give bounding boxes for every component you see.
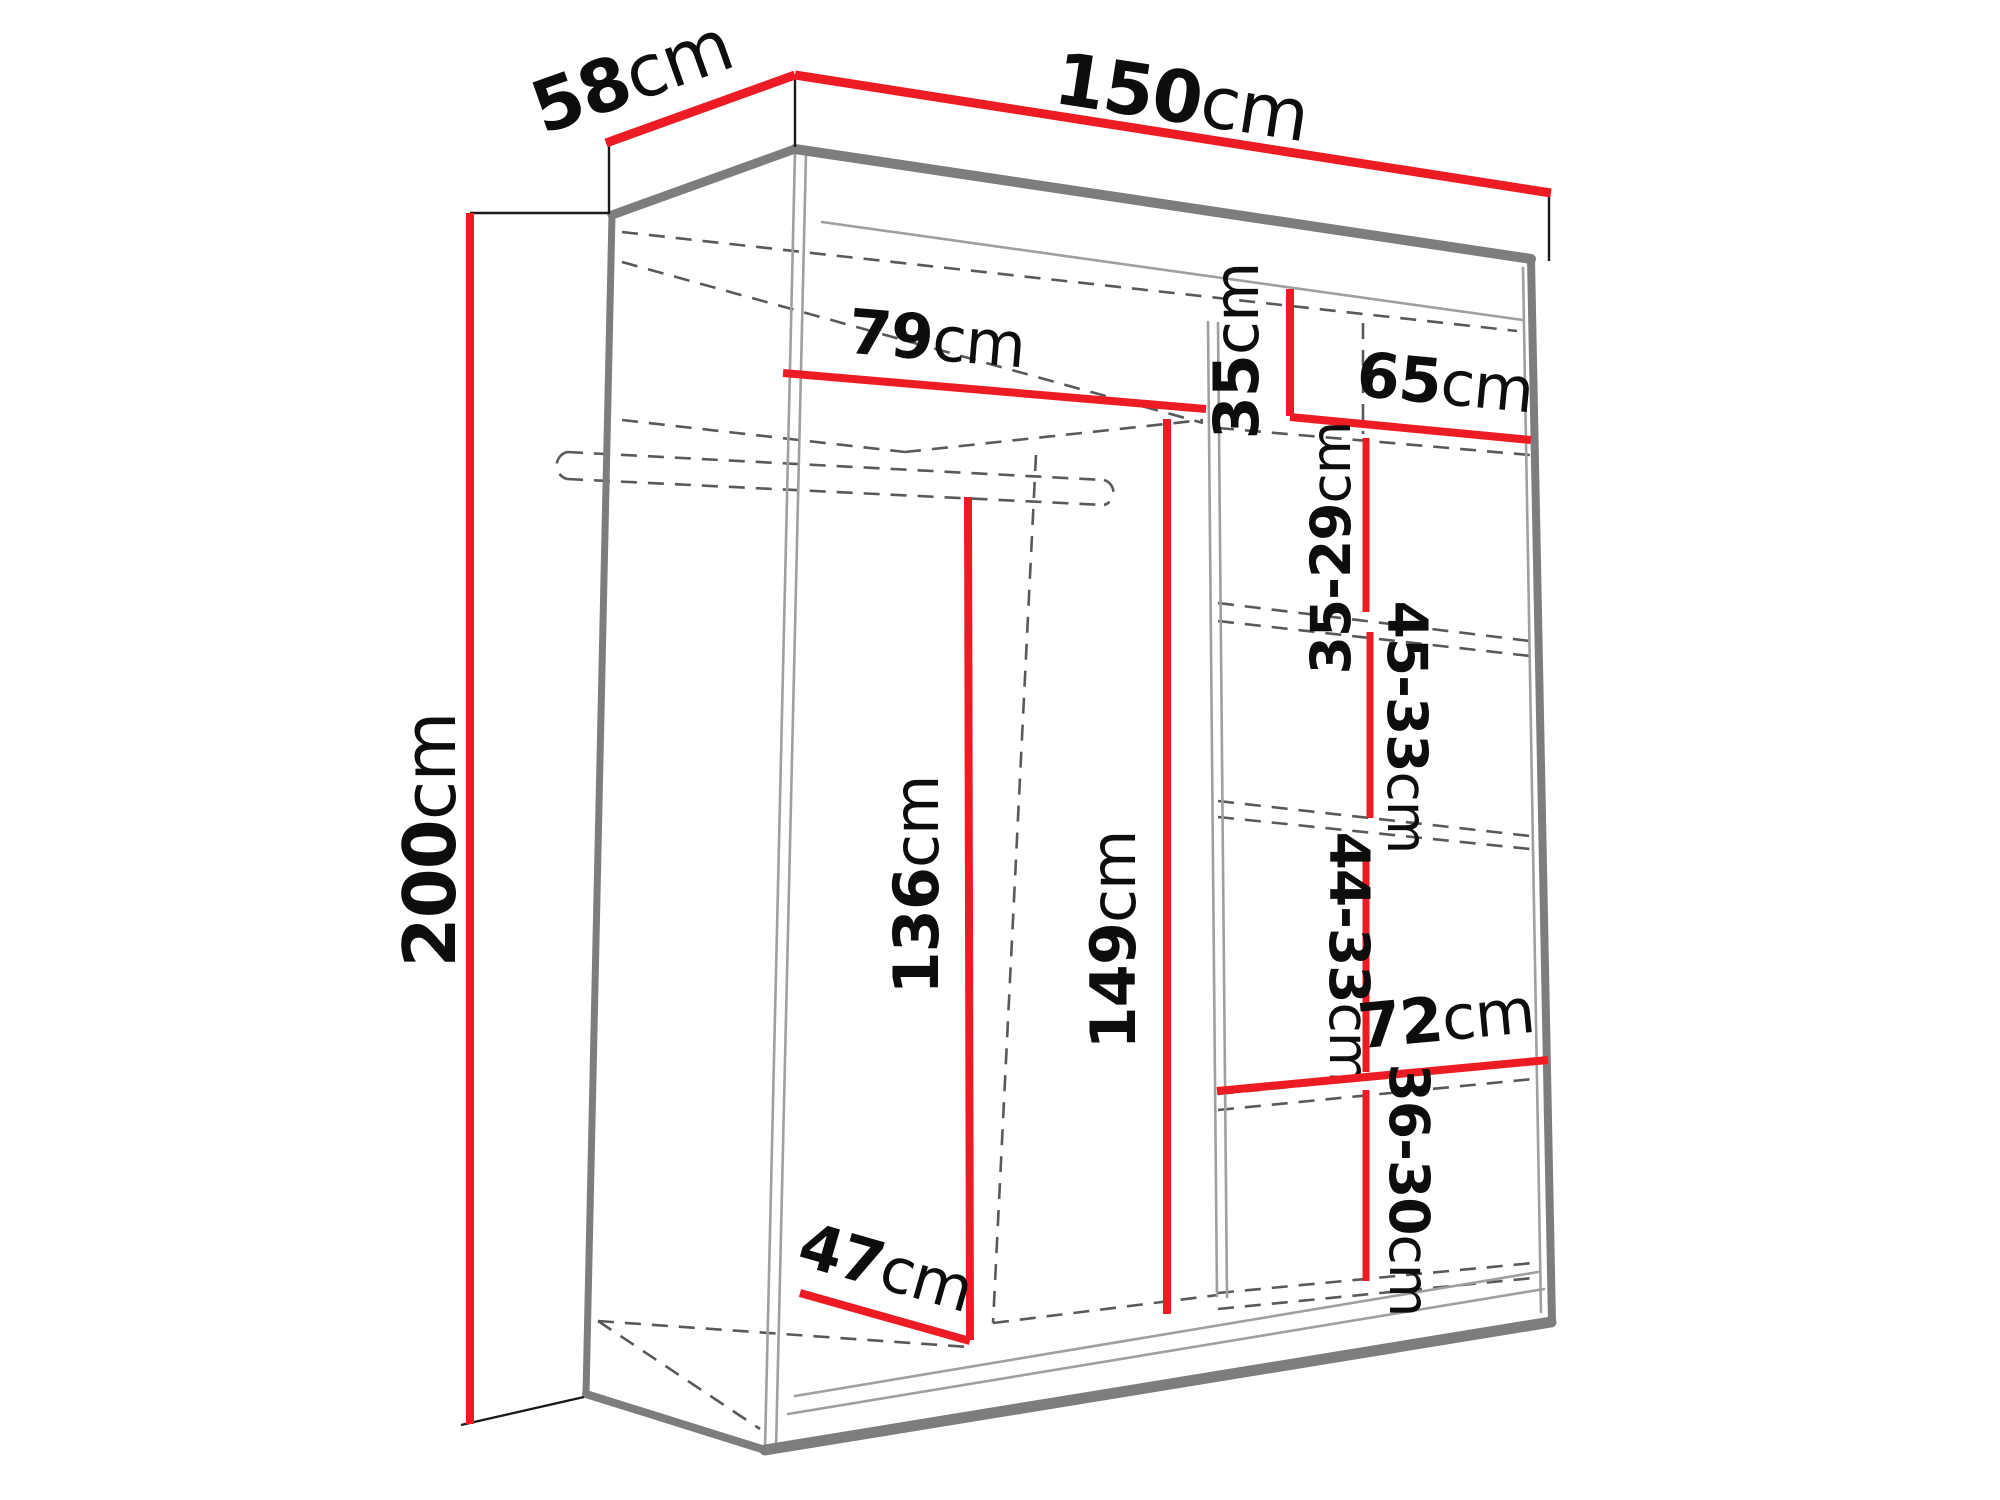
top-side-edge: [612, 149, 795, 215]
dimension-label: 200cm: [388, 712, 472, 967]
floor-right-a: [1218, 1263, 1533, 1293]
clothes-rail-top: [567, 452, 1104, 480]
dimension-hanging-height: 136cm: [880, 497, 970, 1340]
dimension-line: [968, 497, 970, 1340]
clothes-rail-right-cap: [1104, 480, 1113, 505]
dimension-label: 72cm: [1355, 974, 1538, 1063]
clothes-rail-left-cap: [557, 452, 567, 479]
shelf2-edge-a: [1218, 603, 1530, 641]
divider-back-edge: [993, 455, 1036, 1323]
left-shelf-front-edge-b: [905, 420, 1203, 452]
dimension-left-section-width: 79cm: [783, 295, 1206, 409]
dimension-label: 58cm: [521, 2, 743, 150]
dimension-right-column-height: 149cm: [1077, 419, 1167, 1314]
dimension-width: 150cm: [795, 36, 1551, 261]
dimension-label: 65cm: [1354, 338, 1537, 428]
front-right-edge: [1531, 259, 1552, 1322]
floor-left-side: [598, 1321, 760, 1429]
divider-edge-b: [1218, 323, 1227, 1297]
clothes-rail-bottom: [567, 479, 1104, 505]
dimension-floor-depth: 47cm: [791, 1208, 981, 1341]
dimension-depth: 58cm: [521, 2, 795, 214]
shelf2-edge-b: [1218, 621, 1530, 656]
dimension-label: 35cm: [1200, 263, 1273, 440]
dimension-height: 200cm: [388, 213, 609, 1425]
diagram-canvas: 200cm 58cm 150cm 79cm 35cm 65cm 35-29cm …: [0, 0, 2000, 1500]
dimension-shelf-gap-1: 35-29cm: [1299, 422, 1366, 675]
back-left-edge: [586, 215, 612, 1394]
floor-back-right: [993, 1295, 1218, 1323]
dimension-label: 149cm: [1077, 831, 1150, 1050]
dimension-shelf-gap-4: 36-30cm: [1366, 1064, 1441, 1317]
left-shelf-front-edge-a: [622, 420, 905, 452]
side-bottom-edge: [586, 1394, 765, 1450]
wardrobe-dimension-diagram: 200cm 58cm 150cm 79cm 35cm 65cm 35-29cm …: [0, 0, 2000, 1500]
dimension-label: 79cm: [846, 295, 1028, 383]
dimension-shelf-gap-2: 45-33cm: [1370, 601, 1439, 854]
dimension-label: 45-33cm: [1375, 601, 1439, 854]
dimension-label: 136cm: [880, 776, 953, 995]
dimension-label: 35-29cm: [1299, 422, 1363, 675]
dimension-top-shelf-height: 35cm: [1200, 263, 1290, 440]
dimension-label: 36-30cm: [1377, 1064, 1441, 1317]
extension-line: [461, 1397, 584, 1425]
floor-right-b: [1218, 1278, 1533, 1309]
dimension-label: 47cm: [791, 1208, 981, 1327]
dimension-label: 150cm: [1049, 36, 1314, 158]
top-front-edge: [795, 149, 1531, 259]
divider-edge-a: [1208, 322, 1217, 1296]
ceiling-back-edge: [622, 232, 1517, 331]
